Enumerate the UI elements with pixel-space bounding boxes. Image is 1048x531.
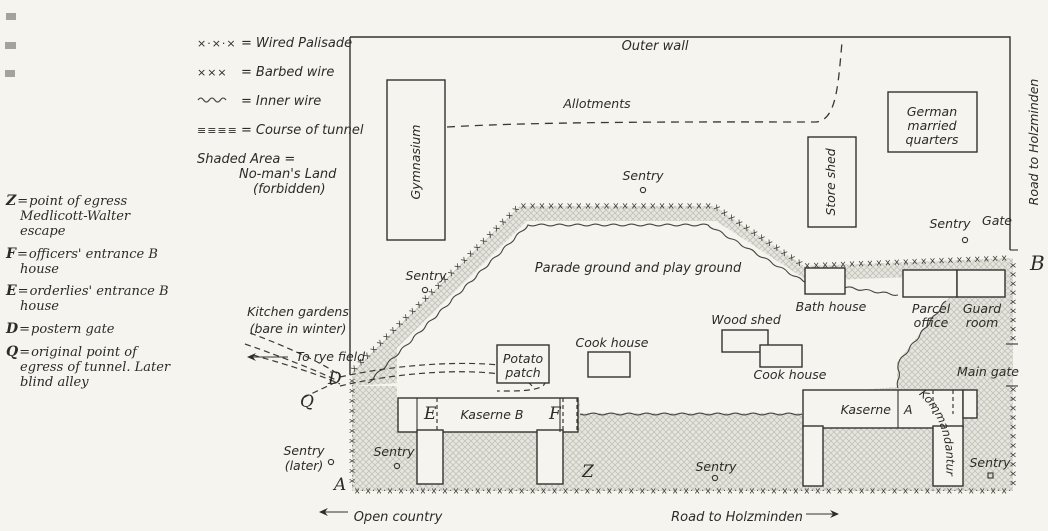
sentry-later-label-1: Sentry <box>284 443 326 458</box>
kaserne-b-east-wing <box>537 430 563 484</box>
kitchen-gardens-label-2: (bare in winter) <box>250 321 347 336</box>
parcel-office-label-2: office <box>914 315 949 330</box>
allotments-boundary <box>447 42 842 127</box>
point-A-label: A <box>332 475 346 495</box>
kaserne-a-west-wing <box>803 426 823 486</box>
sentry-later-label-2: (later) <box>285 458 324 473</box>
cook-house-building-1 <box>588 352 630 377</box>
parcel-office-label-1: Parcel <box>912 301 951 316</box>
sentry-gate-label: Sentry <box>930 216 972 231</box>
guard-room-label-1: Guard <box>963 301 1001 316</box>
open-country-label: Open country <box>354 510 443 525</box>
kommandantur-annex <box>963 390 977 418</box>
potato-patch-label-2: patch <box>504 365 540 380</box>
point-Q-label: Q <box>300 392 314 412</box>
road-holzminden-south-label: Road to Holzminden <box>671 510 803 525</box>
point-D-label: D <box>327 369 342 389</box>
cook-house-2-label: Cook house <box>754 367 827 382</box>
gate-label: Gate <box>982 213 1012 228</box>
sentry-marker-north <box>640 187 645 192</box>
potato-patch-label-1: Potato <box>503 351 544 366</box>
camp-map-page: ×·×·× = Wired Palisade ××× = Barbed wire… <box>0 0 1048 531</box>
point-Z-label: Z <box>581 462 595 482</box>
german-quarters-label-1: German <box>907 104 957 119</box>
point-F-label: F <box>548 404 562 424</box>
guard-room-label-2: room <box>966 315 999 330</box>
wired-palisade-south: ×·×·×·×·×·×·×·×·×·×·×·×·×·×·×·×·×·×·×·×·… <box>354 486 1012 497</box>
german-quarters-label-3: quarters <box>906 132 959 147</box>
wired-palisade-west: ×·×·×·×·×·×·×·×·×·×·×· <box>346 378 357 488</box>
barbed-wire-east-upper: ××××××××× <box>1007 262 1018 344</box>
to-rye-field-label: To rye field <box>296 349 365 364</box>
point-E-label: E <box>423 404 437 424</box>
kaserne-a-label: Kaserne <box>841 402 892 417</box>
cook-house-building-2 <box>760 345 802 367</box>
bath-house-label: Bath house <box>796 299 867 314</box>
guard-room-building <box>957 270 1005 297</box>
parade-ground-label: Parade ground and play ground <box>535 261 742 276</box>
road-holzminden-east-label: Road to Holzminden <box>1026 79 1041 206</box>
parcel-office-building <box>903 270 957 297</box>
sentry-south-label: Sentry <box>696 459 738 474</box>
bath-house-building <box>805 268 845 294</box>
sentry-inner-west-label: Sentry <box>374 444 416 459</box>
sentry-west-label: Sentry <box>406 268 448 283</box>
point-B-label: B <box>1029 251 1045 275</box>
sentry-marker-later <box>328 459 333 464</box>
main-gate-label: Main gate <box>957 364 1019 379</box>
cook-house-1-label: Cook house <box>576 335 649 350</box>
kitchen-gardens-label-1: Kitchen gardens <box>247 304 349 319</box>
german-quarters-label-2: married <box>907 118 956 133</box>
allotments-label: Allotments <box>562 96 631 111</box>
sentry-north-label: Sentry <box>623 168 665 183</box>
store-shed-label: Store shed <box>823 148 838 215</box>
sentry-marker-gate <box>962 237 967 242</box>
camp-map: ×××××××××××××××××××××××××× ×××××××××××××… <box>0 0 1048 531</box>
gymnasium-label: Gymnasium <box>408 125 423 200</box>
kaserne-b-west-wing <box>417 430 443 484</box>
kaserne-b-label: Kaserne B <box>461 407 524 422</box>
barbed-wire-north: ××××××××××××××××××××× <box>520 201 714 212</box>
wood-shed-label: Wood shed <box>711 312 781 327</box>
kaserne-a-letter: A <box>903 402 913 417</box>
outer-wall-label: Outer wall <box>622 39 689 54</box>
sentry-southeast-label: Sentry <box>970 455 1012 470</box>
barbed-wire-east-lower: ××××××××××× <box>1007 386 1018 489</box>
